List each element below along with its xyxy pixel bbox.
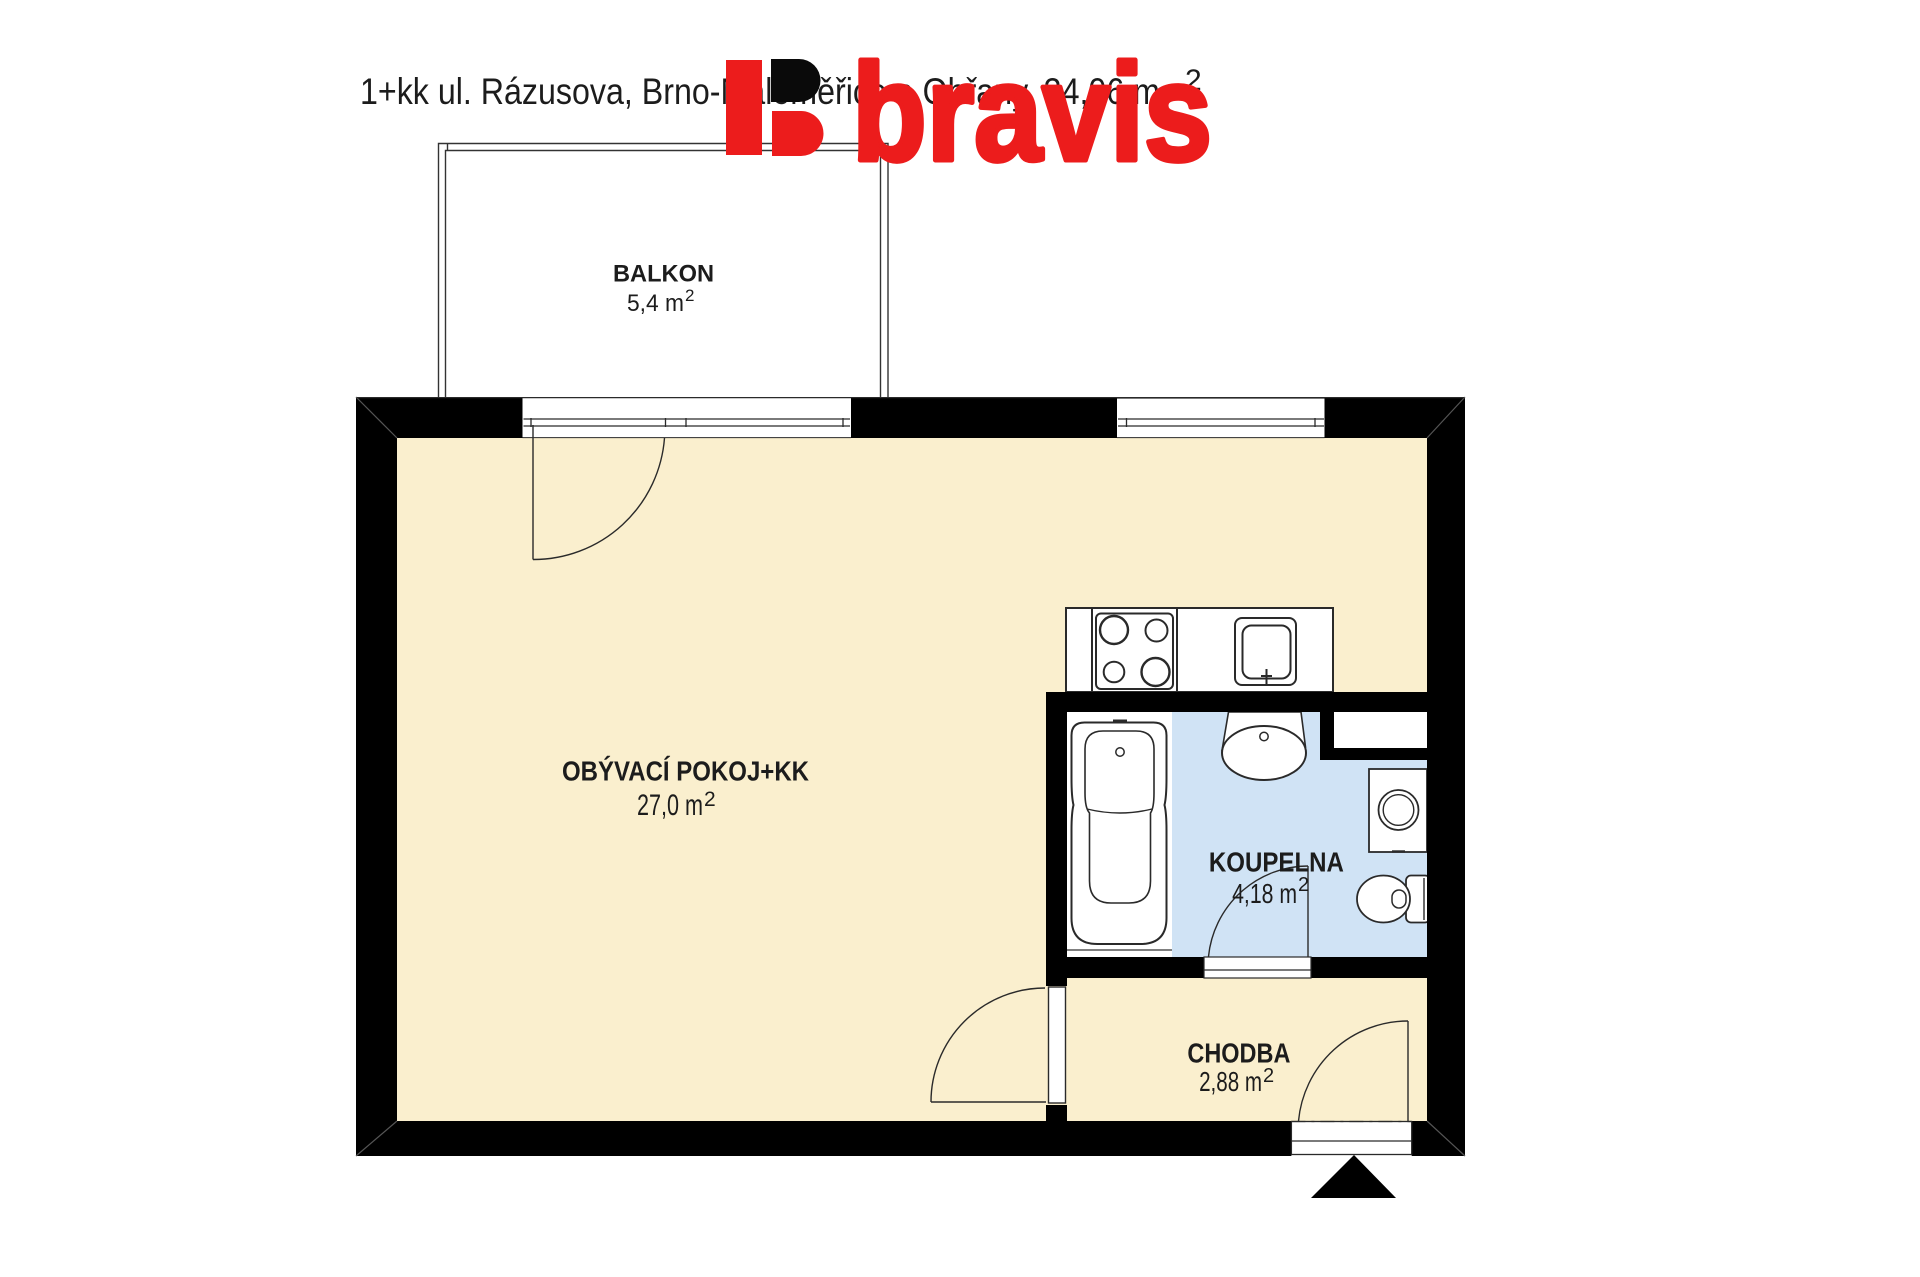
svg-text:BALKON: BALKON — [613, 261, 714, 288]
svg-text:bravis: bravis — [852, 36, 1212, 190]
svg-text:2: 2 — [1298, 874, 1309, 896]
svg-text:OBÝVACÍ POKOJ+KK: OBÝVACÍ POKOJ+KK — [562, 756, 809, 787]
svg-text:4,18 m: 4,18 m — [1232, 878, 1297, 909]
svg-text:2: 2 — [704, 788, 716, 811]
svg-text:2: 2 — [685, 286, 694, 305]
svg-text:2,88 m: 2,88 m — [1199, 1066, 1262, 1097]
svg-text:CHODBA: CHODBA — [1187, 1038, 1290, 1069]
svg-text:KOUPELNA: KOUPELNA — [1209, 847, 1344, 878]
svg-text:2: 2 — [1263, 1065, 1274, 1087]
svg-text:27,0 m: 27,0 m — [637, 789, 703, 822]
svg-text:5,4 m: 5,4 m — [627, 290, 684, 317]
